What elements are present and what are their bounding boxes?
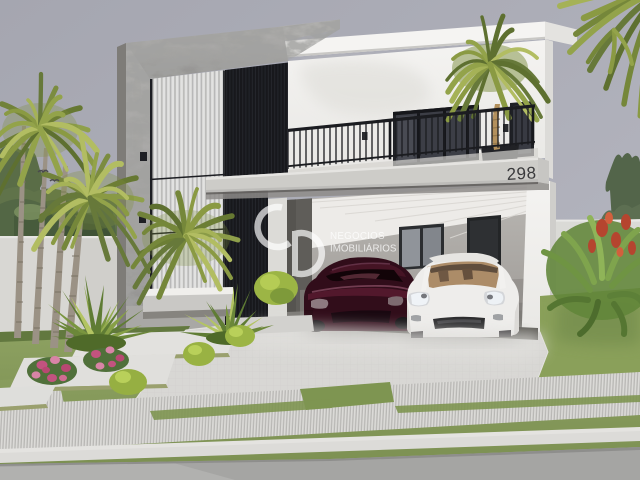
svg-text:IMOBILIÁRIOS: IMOBILIÁRIOS [330, 244, 397, 255]
svg-text:298: 298 [506, 163, 537, 184]
svg-text:NEGÓCIOS: NEGÓCIOS [330, 231, 385, 242]
